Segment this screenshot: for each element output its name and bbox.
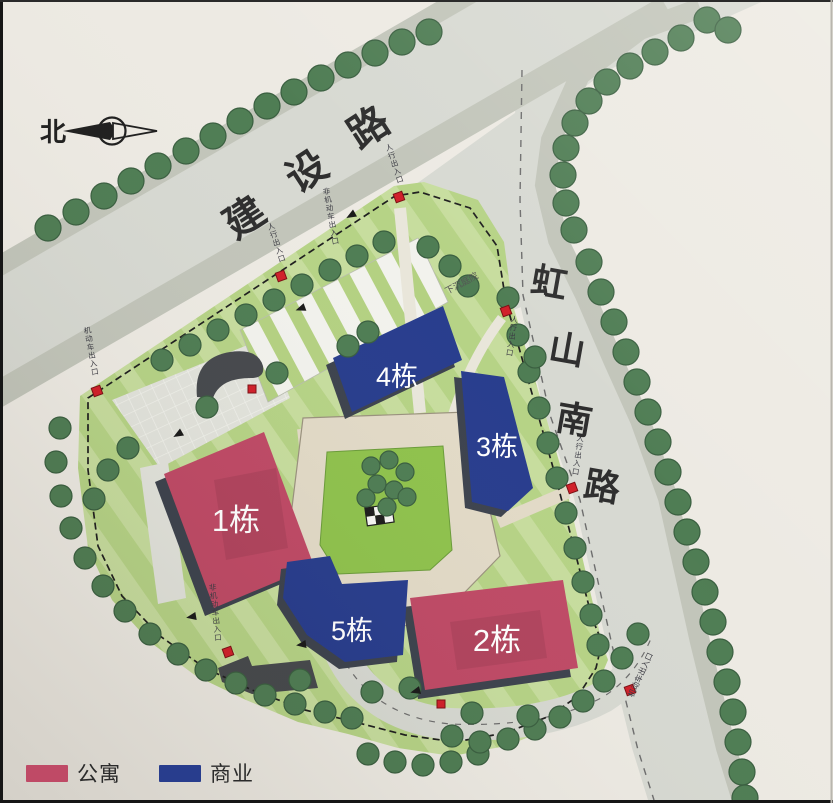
tree (412, 754, 434, 776)
apartment-color-swatch (26, 765, 68, 782)
tree (227, 108, 253, 134)
tree (92, 575, 114, 597)
tree (720, 699, 746, 725)
tree (63, 199, 89, 225)
tree (139, 623, 161, 645)
tree (357, 321, 379, 343)
tree (362, 40, 388, 66)
tree (357, 489, 375, 507)
tree (398, 488, 416, 506)
tree (378, 498, 396, 516)
building-4-label: 4栋 (376, 362, 418, 392)
tree (572, 571, 594, 593)
svg-text:虹: 虹 (528, 259, 571, 306)
tree (308, 65, 334, 91)
tree (683, 549, 709, 575)
tree (179, 334, 201, 356)
tree (549, 706, 571, 728)
tree (207, 319, 229, 341)
tree (729, 759, 755, 785)
tree (674, 519, 700, 545)
tree (624, 369, 650, 395)
tree (564, 537, 586, 559)
tree (642, 39, 668, 65)
tree (362, 457, 380, 475)
tree (91, 183, 117, 209)
tree (461, 702, 483, 724)
tree (60, 517, 82, 539)
tree (167, 643, 189, 665)
tree (396, 463, 414, 481)
tree (517, 705, 539, 727)
tree (440, 751, 462, 773)
tree (284, 693, 306, 715)
tree (572, 690, 594, 712)
tree (281, 79, 307, 105)
north-label: 北 (40, 117, 66, 147)
svg-text:山: 山 (546, 326, 589, 373)
legend-label-apartment: 公寓 (77, 758, 121, 788)
tree (266, 362, 288, 384)
svg-text:南: 南 (553, 396, 596, 443)
tree (550, 162, 576, 188)
tree (593, 670, 615, 692)
tree (668, 25, 694, 51)
tree (97, 459, 119, 481)
tree (553, 190, 579, 216)
legend-label-commercial: 商业 (210, 758, 254, 788)
tree (692, 579, 718, 605)
tree (341, 707, 363, 729)
tree (700, 609, 726, 635)
tree (725, 729, 751, 755)
tree (263, 289, 285, 311)
tree (173, 138, 199, 164)
tree (373, 231, 395, 253)
tree (380, 451, 398, 469)
tree (83, 488, 105, 510)
tree (50, 485, 72, 507)
tree (291, 274, 313, 296)
tree (613, 339, 639, 365)
building-5-label: 5栋 (331, 616, 373, 646)
tree (117, 437, 139, 459)
tree (576, 88, 602, 114)
tree (469, 731, 491, 753)
commercial-color-swatch (159, 765, 201, 782)
tree (562, 110, 588, 136)
tree (346, 245, 368, 267)
tree (45, 451, 67, 473)
tree (145, 153, 171, 179)
tree (357, 743, 379, 765)
tree (715, 17, 741, 43)
tree (587, 634, 609, 656)
tree (635, 399, 661, 425)
legend-item-apartment: 公寓 (26, 758, 121, 788)
tree (601, 309, 627, 335)
tree (627, 623, 649, 645)
tree (319, 259, 341, 281)
tree (196, 396, 218, 418)
tree (195, 659, 217, 681)
building-3-label: 3栋 (476, 432, 518, 462)
tree (714, 669, 740, 695)
tree (588, 279, 614, 305)
tree (35, 215, 61, 241)
tree (576, 249, 602, 275)
tree (118, 168, 144, 194)
tree (254, 93, 280, 119)
tree (337, 335, 359, 357)
tree (655, 459, 681, 485)
tree (553, 135, 579, 161)
site-plan-svg: 1栋2栋3栋4栋5栋人行出入口人行出入口机动车出入口人行出入口人行出入口非机动车… (0, 0, 833, 803)
tree (151, 349, 173, 371)
site-plan-photo: 1栋2栋3栋4栋5栋人行出入口人行出入口机动车出入口人行出入口人行出入口非机动车… (0, 0, 833, 803)
tree (611, 647, 633, 669)
building-1-label: 1栋 (212, 503, 260, 538)
tree (617, 53, 643, 79)
tree (254, 684, 276, 706)
tree (707, 639, 733, 665)
tree (416, 19, 442, 45)
tree (389, 29, 415, 55)
tree (225, 672, 247, 694)
tree (561, 217, 587, 243)
tree (335, 52, 361, 78)
tree (645, 429, 671, 455)
tree (439, 255, 461, 277)
tree (361, 681, 383, 703)
tree (200, 123, 226, 149)
entrance-marker (248, 385, 256, 393)
tree (555, 502, 577, 524)
tree (441, 725, 463, 747)
tree (546, 467, 568, 489)
tree (528, 397, 550, 419)
tree (49, 417, 71, 439)
tree (74, 547, 96, 569)
tree (114, 600, 136, 622)
tree (580, 604, 602, 626)
tree (235, 304, 257, 326)
legend: 公寓 商业 (26, 758, 254, 788)
tree (417, 236, 439, 258)
tree (384, 751, 406, 773)
tree (665, 489, 691, 515)
tree (314, 701, 336, 723)
tree (524, 346, 546, 368)
tree (497, 728, 519, 750)
building-2-label: 2栋 (473, 623, 521, 658)
tree (289, 669, 311, 691)
legend-item-commercial: 商业 (159, 758, 254, 788)
entrance-marker (437, 700, 445, 708)
